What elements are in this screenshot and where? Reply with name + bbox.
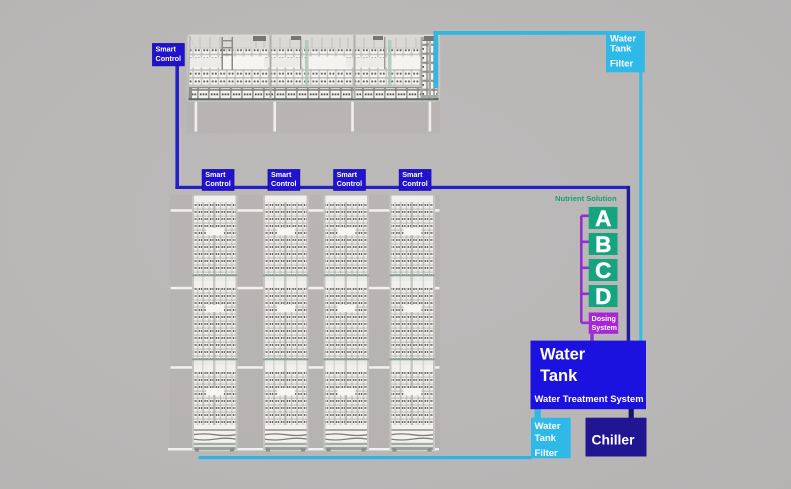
svg-text:Smart: Smart — [205, 170, 226, 179]
svg-text:Control: Control — [205, 179, 231, 188]
svg-text:Water: Water — [535, 421, 561, 432]
svg-text:Tank: Tank — [610, 44, 632, 55]
svg-text:Control: Control — [156, 54, 182, 63]
svg-text:Control: Control — [337, 179, 363, 188]
svg-text:Filter: Filter — [610, 59, 634, 70]
svg-text:Water: Water — [540, 346, 586, 364]
svg-text:Smart: Smart — [337, 170, 358, 179]
svg-text:Chiller: Chiller — [592, 432, 636, 447]
svg-text:Smart: Smart — [271, 170, 292, 179]
svg-text:C: C — [595, 258, 611, 283]
svg-text:B: B — [595, 232, 611, 257]
svg-text:Control: Control — [402, 179, 428, 188]
svg-text:Water Treatment System: Water Treatment System — [535, 393, 644, 404]
svg-text:D: D — [595, 284, 611, 309]
svg-text:System: System — [592, 323, 618, 332]
svg-text:A: A — [595, 206, 611, 231]
svg-text:Tank: Tank — [535, 433, 557, 444]
svg-text:Nutrient Solution: Nutrient Solution — [555, 194, 617, 203]
svg-text:Control: Control — [271, 179, 297, 188]
svg-text:Smart: Smart — [156, 45, 177, 54]
svg-text:Tank: Tank — [540, 367, 578, 385]
svg-text:Smart: Smart — [402, 170, 423, 179]
svg-text:Dosing: Dosing — [592, 314, 616, 323]
svg-text:Filter: Filter — [535, 448, 559, 459]
